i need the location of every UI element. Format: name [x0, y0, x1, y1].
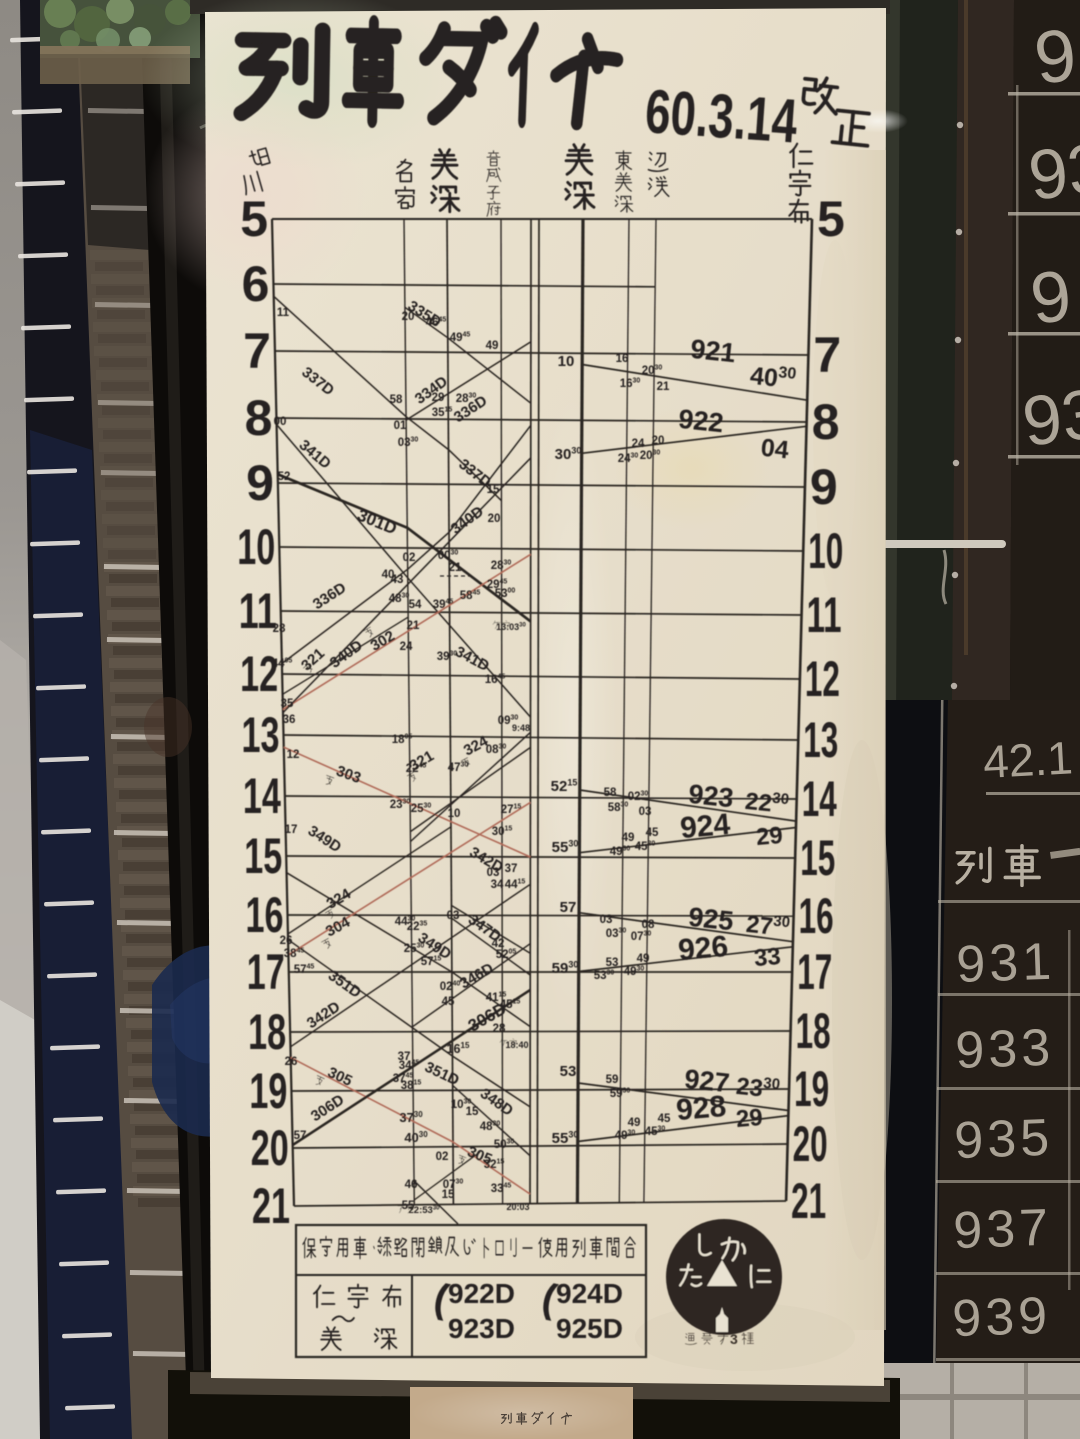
svg-text:21: 21 [407, 620, 420, 632]
svg-text:52: 52 [278, 471, 291, 483]
svg-text:15: 15 [800, 830, 835, 886]
svg-text:59: 59 [606, 1074, 619, 1086]
svg-text:10: 10 [237, 519, 275, 575]
svg-text:03: 03 [447, 910, 460, 922]
svg-text:26: 26 [285, 1056, 298, 1068]
svg-text:21: 21 [449, 562, 462, 574]
svg-text:17: 17 [797, 944, 832, 1000]
svg-text:922: 922 [677, 404, 725, 439]
svg-text:02: 02 [436, 1151, 449, 1163]
svg-text:21: 21 [657, 381, 670, 393]
svg-text:60.3.14: 60.3.14 [643, 77, 800, 156]
svg-text:928: 928 [675, 1090, 728, 1127]
svg-text:20: 20 [488, 513, 501, 525]
svg-text:35: 35 [281, 698, 294, 710]
svg-text:13: 13 [242, 707, 280, 763]
svg-text:34: 34 [491, 879, 504, 891]
svg-text:12: 12 [240, 646, 278, 702]
svg-text:02: 02 [403, 552, 416, 564]
svg-text:17: 17 [247, 944, 285, 1000]
svg-text:58: 58 [604, 787, 617, 799]
svg-text:21: 21 [791, 1173, 826, 1229]
svg-text:49: 49 [622, 832, 635, 844]
svg-text:20: 20 [402, 311, 415, 323]
svg-text:6: 6 [242, 256, 270, 312]
svg-text:21: 21 [252, 1178, 290, 1234]
svg-text:58: 58 [390, 394, 403, 406]
svg-text:57: 57 [560, 899, 577, 916]
svg-text:29: 29 [735, 1104, 764, 1133]
svg-text:10: 10 [558, 353, 575, 370]
svg-text:922D: 922D [448, 1278, 515, 1309]
svg-text:53: 53 [606, 957, 619, 969]
svg-text:921: 921 [689, 334, 737, 369]
svg-text:11: 11 [807, 587, 842, 643]
svg-text:924D: 924D [556, 1278, 623, 1309]
svg-text:16: 16 [799, 888, 834, 944]
svg-text:03: 03 [639, 806, 652, 818]
svg-text:28: 28 [273, 623, 286, 635]
svg-text:7: 7 [243, 323, 271, 379]
svg-text:93: 93 [1018, 374, 1080, 461]
svg-text:3: 3 [730, 1331, 738, 1347]
svg-text:43: 43 [391, 574, 404, 586]
svg-text:03: 03 [600, 914, 613, 926]
svg-text:28: 28 [493, 1023, 506, 1035]
svg-text:19: 19 [794, 1061, 829, 1117]
svg-text:15: 15 [487, 484, 500, 496]
svg-text:13: 13 [803, 712, 838, 768]
svg-text:937: 937 [952, 1199, 1053, 1260]
svg-text:18: 18 [248, 1004, 286, 1060]
svg-text:49: 49 [486, 340, 499, 352]
svg-text:16: 16 [246, 887, 284, 943]
svg-text:42.1: 42.1 [982, 731, 1074, 788]
svg-text:926: 926 [677, 930, 730, 967]
svg-text:29: 29 [432, 392, 445, 404]
svg-text:8: 8 [245, 390, 273, 446]
svg-text:04: 04 [760, 434, 791, 465]
svg-text:933: 933 [954, 1019, 1055, 1080]
svg-text:26: 26 [280, 935, 293, 947]
svg-text:45: 45 [442, 996, 455, 1008]
svg-text:36: 36 [283, 714, 296, 726]
svg-text:10: 10 [808, 523, 843, 579]
svg-text:935: 935 [953, 1109, 1054, 1170]
svg-text:46: 46 [405, 1179, 418, 1191]
svg-text:14: 14 [802, 771, 837, 827]
svg-text:9: 9 [810, 459, 838, 515]
svg-text:7: 7 [813, 327, 841, 383]
svg-text:9: 9 [246, 455, 274, 511]
svg-text:12: 12 [287, 749, 300, 761]
svg-text:931: 931 [955, 933, 1056, 994]
svg-text:19: 19 [249, 1063, 287, 1119]
svg-text:939: 939 [951, 1287, 1052, 1348]
svg-text:57: 57 [294, 1130, 307, 1142]
svg-text:17: 17 [285, 824, 298, 836]
svg-text:924: 924 [679, 808, 732, 845]
svg-text:925D: 925D [556, 1313, 623, 1344]
svg-text:01: 01 [394, 420, 407, 432]
svg-text:923D: 923D [448, 1313, 515, 1344]
svg-text:5: 5 [817, 191, 845, 247]
svg-text:49: 49 [637, 953, 650, 965]
svg-text:49: 49 [628, 1117, 641, 1129]
svg-text:15: 15 [244, 828, 282, 884]
svg-text:53: 53 [560, 1063, 577, 1080]
svg-text:45: 45 [658, 1113, 671, 1125]
svg-text:93: 93 [1024, 128, 1080, 215]
svg-text:11: 11 [277, 307, 290, 319]
svg-text:12: 12 [805, 651, 840, 707]
svg-text:16: 16 [616, 353, 629, 365]
svg-text:00: 00 [274, 416, 287, 428]
svg-text:54: 54 [409, 599, 422, 611]
svg-text:11: 11 [239, 583, 277, 639]
svg-text:08: 08 [642, 919, 655, 931]
svg-text:03: 03 [487, 867, 500, 879]
svg-text:24: 24 [632, 438, 645, 450]
svg-text:10: 10 [448, 808, 461, 820]
svg-text:18:40: 18:40 [505, 1040, 528, 1050]
svg-text:15: 15 [466, 1106, 479, 1118]
svg-text:37: 37 [505, 863, 518, 875]
svg-text:18: 18 [796, 1003, 831, 1059]
svg-text:20: 20 [251, 1120, 289, 1176]
svg-text:20:03: 20:03 [506, 1202, 529, 1212]
svg-text:5: 5 [240, 191, 268, 247]
svg-text:20: 20 [652, 435, 665, 447]
svg-text:14: 14 [243, 768, 281, 824]
svg-text:33: 33 [753, 943, 782, 972]
svg-text:9:48: 9:48 [512, 723, 530, 733]
svg-text:29: 29 [755, 822, 784, 851]
svg-text:24: 24 [400, 641, 413, 653]
svg-text:20: 20 [793, 1116, 828, 1172]
svg-text:8: 8 [812, 394, 840, 450]
svg-text:45: 45 [646, 827, 659, 839]
